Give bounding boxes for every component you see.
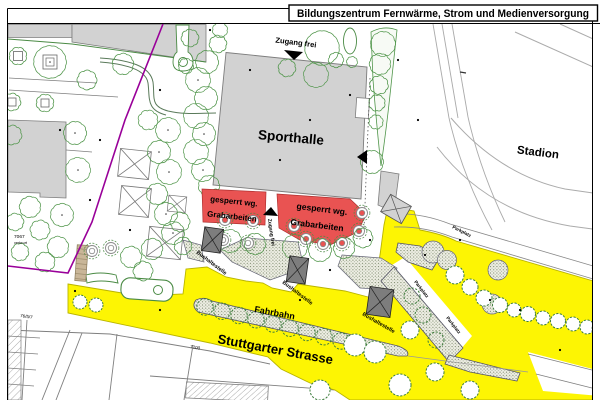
svg-text:Bildungszentrum Fernwärme, Str: Bildungszentrum Fernwärme, Strom und Med… <box>297 8 589 20</box>
svg-text:verbrurt: verbrurt <box>14 241 28 245</box>
svg-text:7067: 7067 <box>14 234 25 240</box>
